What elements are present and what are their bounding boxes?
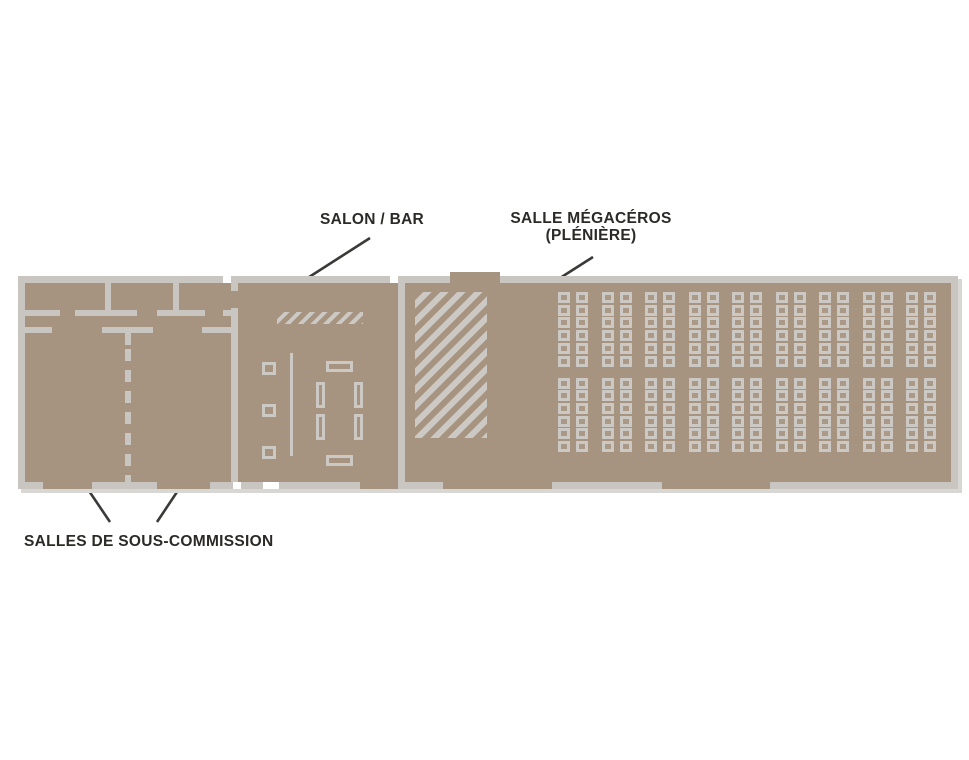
- seat: [645, 305, 657, 316]
- seat: [558, 317, 570, 328]
- wall-segment: [18, 310, 60, 316]
- seat: [663, 390, 675, 401]
- seat: [576, 378, 588, 389]
- seat: [750, 343, 762, 354]
- label-salle-megaceros-line1: SALLE MÉGACÉROS: [500, 211, 682, 228]
- floor-plan-page: SALON / BAR SALLE MÉGACÉROS (PLÉNIÈRE) S…: [0, 0, 969, 760]
- salon-table: [262, 362, 276, 375]
- seat: [924, 343, 936, 354]
- seat: [558, 330, 570, 341]
- seat: [863, 390, 875, 401]
- seat: [863, 416, 875, 427]
- seat: [863, 378, 875, 389]
- seat: [645, 317, 657, 328]
- seat: [645, 390, 657, 401]
- seat: [837, 416, 849, 427]
- seat: [732, 390, 744, 401]
- seat: [924, 416, 936, 427]
- seat: [750, 428, 762, 439]
- seat: [620, 330, 632, 341]
- seat: [906, 330, 918, 341]
- seat: [620, 416, 632, 427]
- label-salon-bar: SALON / BAR: [320, 212, 424, 229]
- floor-plan: [18, 276, 958, 489]
- seat: [645, 378, 657, 389]
- stage-hatch-area: [415, 292, 487, 438]
- seat: [924, 390, 936, 401]
- seat: [576, 441, 588, 452]
- seat: [707, 390, 719, 401]
- seat: [906, 403, 918, 414]
- label-salle-megaceros-line2: (PLÉNIÈRE): [500, 228, 682, 245]
- seat: [776, 343, 788, 354]
- seat: [663, 428, 675, 439]
- seat: [881, 343, 893, 354]
- seat: [750, 441, 762, 452]
- seat: [689, 305, 701, 316]
- bar-counter-hatch: [277, 312, 363, 324]
- dashed-partition: [125, 349, 131, 482]
- seat: [794, 343, 806, 354]
- seat: [732, 292, 744, 303]
- seat: [837, 390, 849, 401]
- seat: [602, 343, 614, 354]
- seat: [863, 403, 875, 414]
- seat: [620, 356, 632, 367]
- seat: [707, 356, 719, 367]
- seat: [924, 330, 936, 341]
- seat: [837, 441, 849, 452]
- seat: [558, 390, 570, 401]
- seat: [750, 403, 762, 414]
- seat: [794, 292, 806, 303]
- seat: [576, 416, 588, 427]
- seat: [689, 343, 701, 354]
- seating-grid: [558, 292, 938, 454]
- seat: [863, 441, 875, 452]
- seat: [906, 378, 918, 389]
- wall-right: [951, 276, 958, 489]
- seat: [906, 416, 918, 427]
- seat: [602, 428, 614, 439]
- wall-top-room-divider-2: [173, 283, 179, 310]
- seat: [558, 305, 570, 316]
- seat: [620, 292, 632, 303]
- seat: [620, 390, 632, 401]
- seat: [689, 403, 701, 414]
- seat: [794, 378, 806, 389]
- entrance-opening: [443, 482, 552, 489]
- seat: [776, 441, 788, 452]
- seat: [558, 441, 570, 452]
- seat: [576, 390, 588, 401]
- seat: [881, 416, 893, 427]
- seat: [837, 330, 849, 341]
- seat: [776, 416, 788, 427]
- seat: [750, 292, 762, 303]
- seat: [707, 428, 719, 439]
- seat: [881, 305, 893, 316]
- salon-counter-line: [290, 353, 293, 456]
- seat: [645, 403, 657, 414]
- seat: [558, 378, 570, 389]
- seat: [881, 441, 893, 452]
- seat: [576, 305, 588, 316]
- seat: [663, 292, 675, 303]
- seat: [689, 416, 701, 427]
- seat: [620, 403, 632, 414]
- seat: [663, 330, 675, 341]
- seat: [707, 317, 719, 328]
- seat: [707, 305, 719, 316]
- seat: [837, 343, 849, 354]
- seat: [881, 330, 893, 341]
- seat: [906, 356, 918, 367]
- seat: [689, 378, 701, 389]
- door-opening: [223, 276, 231, 283]
- seat: [645, 441, 657, 452]
- wall-segment: [223, 310, 237, 316]
- seat: [602, 378, 614, 389]
- seat: [924, 428, 936, 439]
- seat: [881, 356, 893, 367]
- seat: [750, 317, 762, 328]
- wall-segment: [18, 327, 52, 333]
- seat: [881, 378, 893, 389]
- seat: [707, 330, 719, 341]
- seat: [645, 343, 657, 354]
- wall-left: [18, 276, 25, 489]
- wall-divider-salon: [231, 308, 238, 482]
- seat: [707, 378, 719, 389]
- seat: [794, 330, 806, 341]
- seat: [819, 428, 831, 439]
- seat: [663, 403, 675, 414]
- seat: [663, 356, 675, 367]
- wall-stub: [125, 333, 131, 345]
- seat: [819, 441, 831, 452]
- seat: [819, 343, 831, 354]
- seat: [602, 292, 614, 303]
- seat: [750, 330, 762, 341]
- seat: [602, 330, 614, 341]
- seat: [663, 441, 675, 452]
- seat: [881, 390, 893, 401]
- seat: [819, 305, 831, 316]
- seat: [732, 343, 744, 354]
- seat: [663, 416, 675, 427]
- seat: [794, 305, 806, 316]
- seat: [776, 428, 788, 439]
- seat: [863, 356, 875, 367]
- entrance-opening: [662, 482, 770, 489]
- seat: [863, 330, 875, 341]
- seat: [776, 330, 788, 341]
- seat: [906, 390, 918, 401]
- salon-bench-top: [326, 361, 353, 372]
- seat: [558, 403, 570, 414]
- seat: [863, 343, 875, 354]
- seat: [645, 416, 657, 427]
- door-opening: [157, 482, 210, 489]
- room-sous-commission-right: [131, 333, 231, 482]
- seat: [750, 390, 762, 401]
- seat: [689, 428, 701, 439]
- seat: [906, 317, 918, 328]
- seat: [576, 292, 588, 303]
- seat: [707, 292, 719, 303]
- seat: [602, 416, 614, 427]
- seat: [732, 441, 744, 452]
- seat: [620, 343, 632, 354]
- seat: [620, 305, 632, 316]
- seat: [663, 305, 675, 316]
- seat: [794, 390, 806, 401]
- seat: [794, 403, 806, 414]
- wall-top-room-divider-1: [105, 283, 111, 310]
- seat: [819, 403, 831, 414]
- seat: [707, 441, 719, 452]
- seat: [881, 292, 893, 303]
- seat: [576, 356, 588, 367]
- seat: [689, 356, 701, 367]
- seat: [576, 403, 588, 414]
- seat: [732, 378, 744, 389]
- seat: [924, 378, 936, 389]
- seat: [863, 428, 875, 439]
- seat: [558, 343, 570, 354]
- seat: [776, 403, 788, 414]
- seat: [924, 292, 936, 303]
- seat: [558, 292, 570, 303]
- plan-shadow-bottom: [21, 489, 962, 493]
- seat: [776, 356, 788, 367]
- salon-table: [262, 446, 276, 459]
- seat: [881, 428, 893, 439]
- seat: [602, 441, 614, 452]
- seat: [924, 441, 936, 452]
- wall-segment: [157, 310, 205, 316]
- salon-bench: [354, 414, 363, 440]
- seat: [837, 317, 849, 328]
- seat: [906, 305, 918, 316]
- seat: [645, 292, 657, 303]
- seat: [732, 305, 744, 316]
- seat: [837, 378, 849, 389]
- seat: [732, 317, 744, 328]
- seat: [837, 356, 849, 367]
- seat: [620, 441, 632, 452]
- seat: [819, 356, 831, 367]
- seat: [558, 356, 570, 367]
- salon-table: [262, 404, 276, 417]
- seat: [732, 330, 744, 341]
- label-salles-sous-commission: SALLES DE SOUS-COMMISSION: [24, 534, 274, 551]
- seat: [924, 305, 936, 316]
- seat: [576, 330, 588, 341]
- seat: [732, 356, 744, 367]
- seat: [558, 428, 570, 439]
- seat: [906, 343, 918, 354]
- seat: [602, 403, 614, 414]
- seat: [776, 317, 788, 328]
- seat: [881, 317, 893, 328]
- seat: [645, 428, 657, 439]
- seat: [924, 403, 936, 414]
- salon-bench: [316, 414, 325, 440]
- seat: [819, 330, 831, 341]
- seat: [776, 292, 788, 303]
- wall-divider-salon-top: [231, 276, 238, 291]
- seat: [689, 330, 701, 341]
- seat: [663, 378, 675, 389]
- seat: [732, 403, 744, 414]
- seat: [794, 317, 806, 328]
- seat: [558, 416, 570, 427]
- seat: [732, 416, 744, 427]
- wall-divider-pleniere: [398, 276, 405, 482]
- door-opening: [233, 482, 241, 489]
- seat: [689, 292, 701, 303]
- entrance-vestibule: [450, 272, 500, 290]
- seat: [819, 292, 831, 303]
- wall-segment: [75, 310, 137, 316]
- seat: [863, 317, 875, 328]
- salon-bench: [354, 382, 363, 408]
- seat: [602, 305, 614, 316]
- seat: [689, 441, 701, 452]
- seat: [863, 305, 875, 316]
- seat: [689, 390, 701, 401]
- seat: [707, 343, 719, 354]
- seat: [794, 416, 806, 427]
- seat: [837, 428, 849, 439]
- salon-bench-bottom: [326, 455, 353, 466]
- seat: [602, 390, 614, 401]
- label-salle-megaceros: SALLE MÉGACÉROS (PLÉNIÈRE): [500, 211, 682, 244]
- salon-bench: [316, 382, 325, 408]
- seat: [620, 378, 632, 389]
- seat: [819, 390, 831, 401]
- seat: [794, 428, 806, 439]
- seat: [837, 305, 849, 316]
- seat: [794, 356, 806, 367]
- seat: [576, 343, 588, 354]
- seat: [906, 292, 918, 303]
- seat: [645, 330, 657, 341]
- seat: [819, 317, 831, 328]
- seat: [602, 356, 614, 367]
- seat: [732, 428, 744, 439]
- seat: [924, 317, 936, 328]
- door-opening: [390, 276, 398, 283]
- seat: [863, 292, 875, 303]
- wall-segment: [202, 327, 237, 333]
- seat: [707, 403, 719, 414]
- seat: [620, 317, 632, 328]
- seat: [663, 317, 675, 328]
- door-opening: [360, 482, 398, 489]
- seat: [776, 378, 788, 389]
- seat: [924, 356, 936, 367]
- seat: [837, 403, 849, 414]
- seat: [837, 292, 849, 303]
- seat: [707, 416, 719, 427]
- seat: [906, 441, 918, 452]
- seat: [620, 428, 632, 439]
- seat: [576, 317, 588, 328]
- seat: [576, 428, 588, 439]
- plan-shadow-right: [958, 279, 962, 493]
- seat: [750, 356, 762, 367]
- seat: [794, 441, 806, 452]
- room-sous-commission-left: [25, 333, 123, 482]
- seat: [776, 305, 788, 316]
- seat: [906, 428, 918, 439]
- door-opening: [43, 482, 92, 489]
- seat: [689, 317, 701, 328]
- seat: [645, 356, 657, 367]
- seat: [602, 317, 614, 328]
- seat: [750, 305, 762, 316]
- seat: [819, 378, 831, 389]
- seat: [881, 403, 893, 414]
- seat: [776, 390, 788, 401]
- seat: [750, 416, 762, 427]
- seat: [663, 343, 675, 354]
- seat: [819, 416, 831, 427]
- seat: [750, 378, 762, 389]
- door-opening: [263, 482, 279, 489]
